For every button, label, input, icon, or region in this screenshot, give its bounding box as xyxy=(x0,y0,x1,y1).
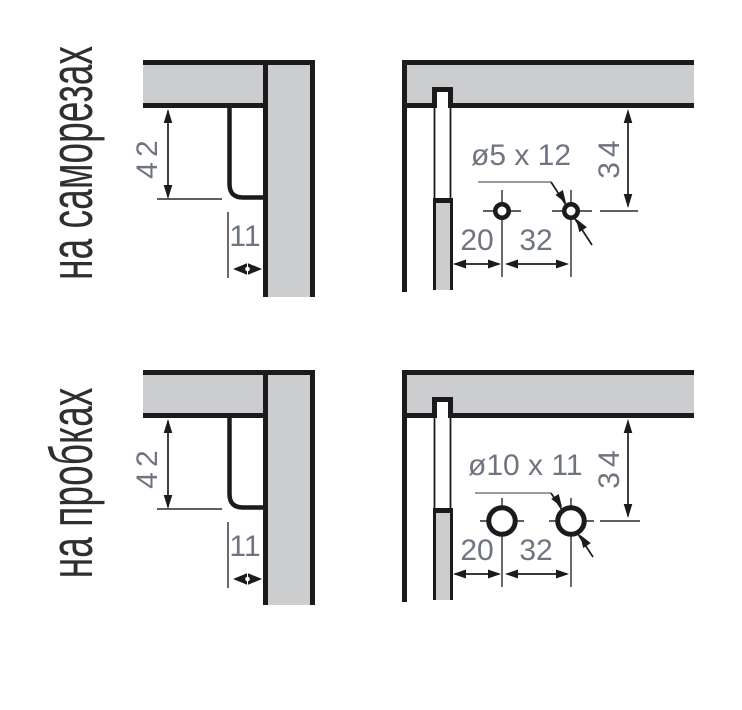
dim-label-offset: 11 xyxy=(229,220,260,253)
hole-spec-label: ø5 x 12 xyxy=(471,139,571,172)
drilling-template-screws-diagram: ø5 x 12 34 20 xyxy=(371,0,742,310)
drill-hole-left-circle xyxy=(489,508,516,535)
dim-top-offset: 34 xyxy=(593,419,640,521)
hole-spec-label: ø10 x 11 xyxy=(468,449,583,482)
dim-label-offset: 11 xyxy=(229,530,260,563)
dim-label-top-offset: 34 xyxy=(593,445,626,488)
dim-label-height: 42 xyxy=(131,135,164,178)
mounting-diagram-canvas: на саморезах на пробках 42 xyxy=(0,0,742,710)
drill-hole-right-circle xyxy=(564,204,578,218)
dim-label-edge-offset: 20 xyxy=(460,534,493,567)
dim-label-hole-spacing: 32 xyxy=(519,534,552,567)
hanging-rail xyxy=(432,397,453,600)
drilling-template-plugs-diagram: ø10 x 11 34 20 xyxy=(371,310,742,620)
hanging-bracket xyxy=(230,106,264,198)
side-panel xyxy=(263,65,315,297)
dim-edge-offset: 20 xyxy=(453,224,501,269)
drill-hole-right-circle xyxy=(558,508,585,535)
dim-bracket-offset: 11 xyxy=(228,212,262,278)
dim-label-height: 42 xyxy=(131,445,164,488)
dim-label-edge-offset: 20 xyxy=(460,224,493,257)
dim-label-top-offset: 34 xyxy=(593,135,626,178)
hanging-bracket xyxy=(230,416,264,508)
hanging-rail xyxy=(432,87,453,290)
corner-section-plugs-diagram: 42 11 xyxy=(0,310,371,620)
dim-hole-spacing: 32 xyxy=(505,224,569,269)
side-panel xyxy=(263,375,315,605)
dim-bracket-offset: 11 xyxy=(228,522,262,588)
dim-edge-offset: 20 xyxy=(453,534,501,579)
side-panel-edge xyxy=(402,60,407,292)
dim-bracket-height: 42 xyxy=(131,109,222,199)
side-panel-edge xyxy=(402,370,407,602)
dim-top-offset: 34 xyxy=(593,109,638,211)
corner-section-screws-diagram: 42 11 xyxy=(0,0,371,310)
drill-hole-left-circle xyxy=(495,204,509,218)
dim-hole-spacing: 32 xyxy=(505,534,569,579)
dim-label-hole-spacing: 32 xyxy=(519,224,552,257)
dim-bracket-height: 42 xyxy=(131,419,222,509)
